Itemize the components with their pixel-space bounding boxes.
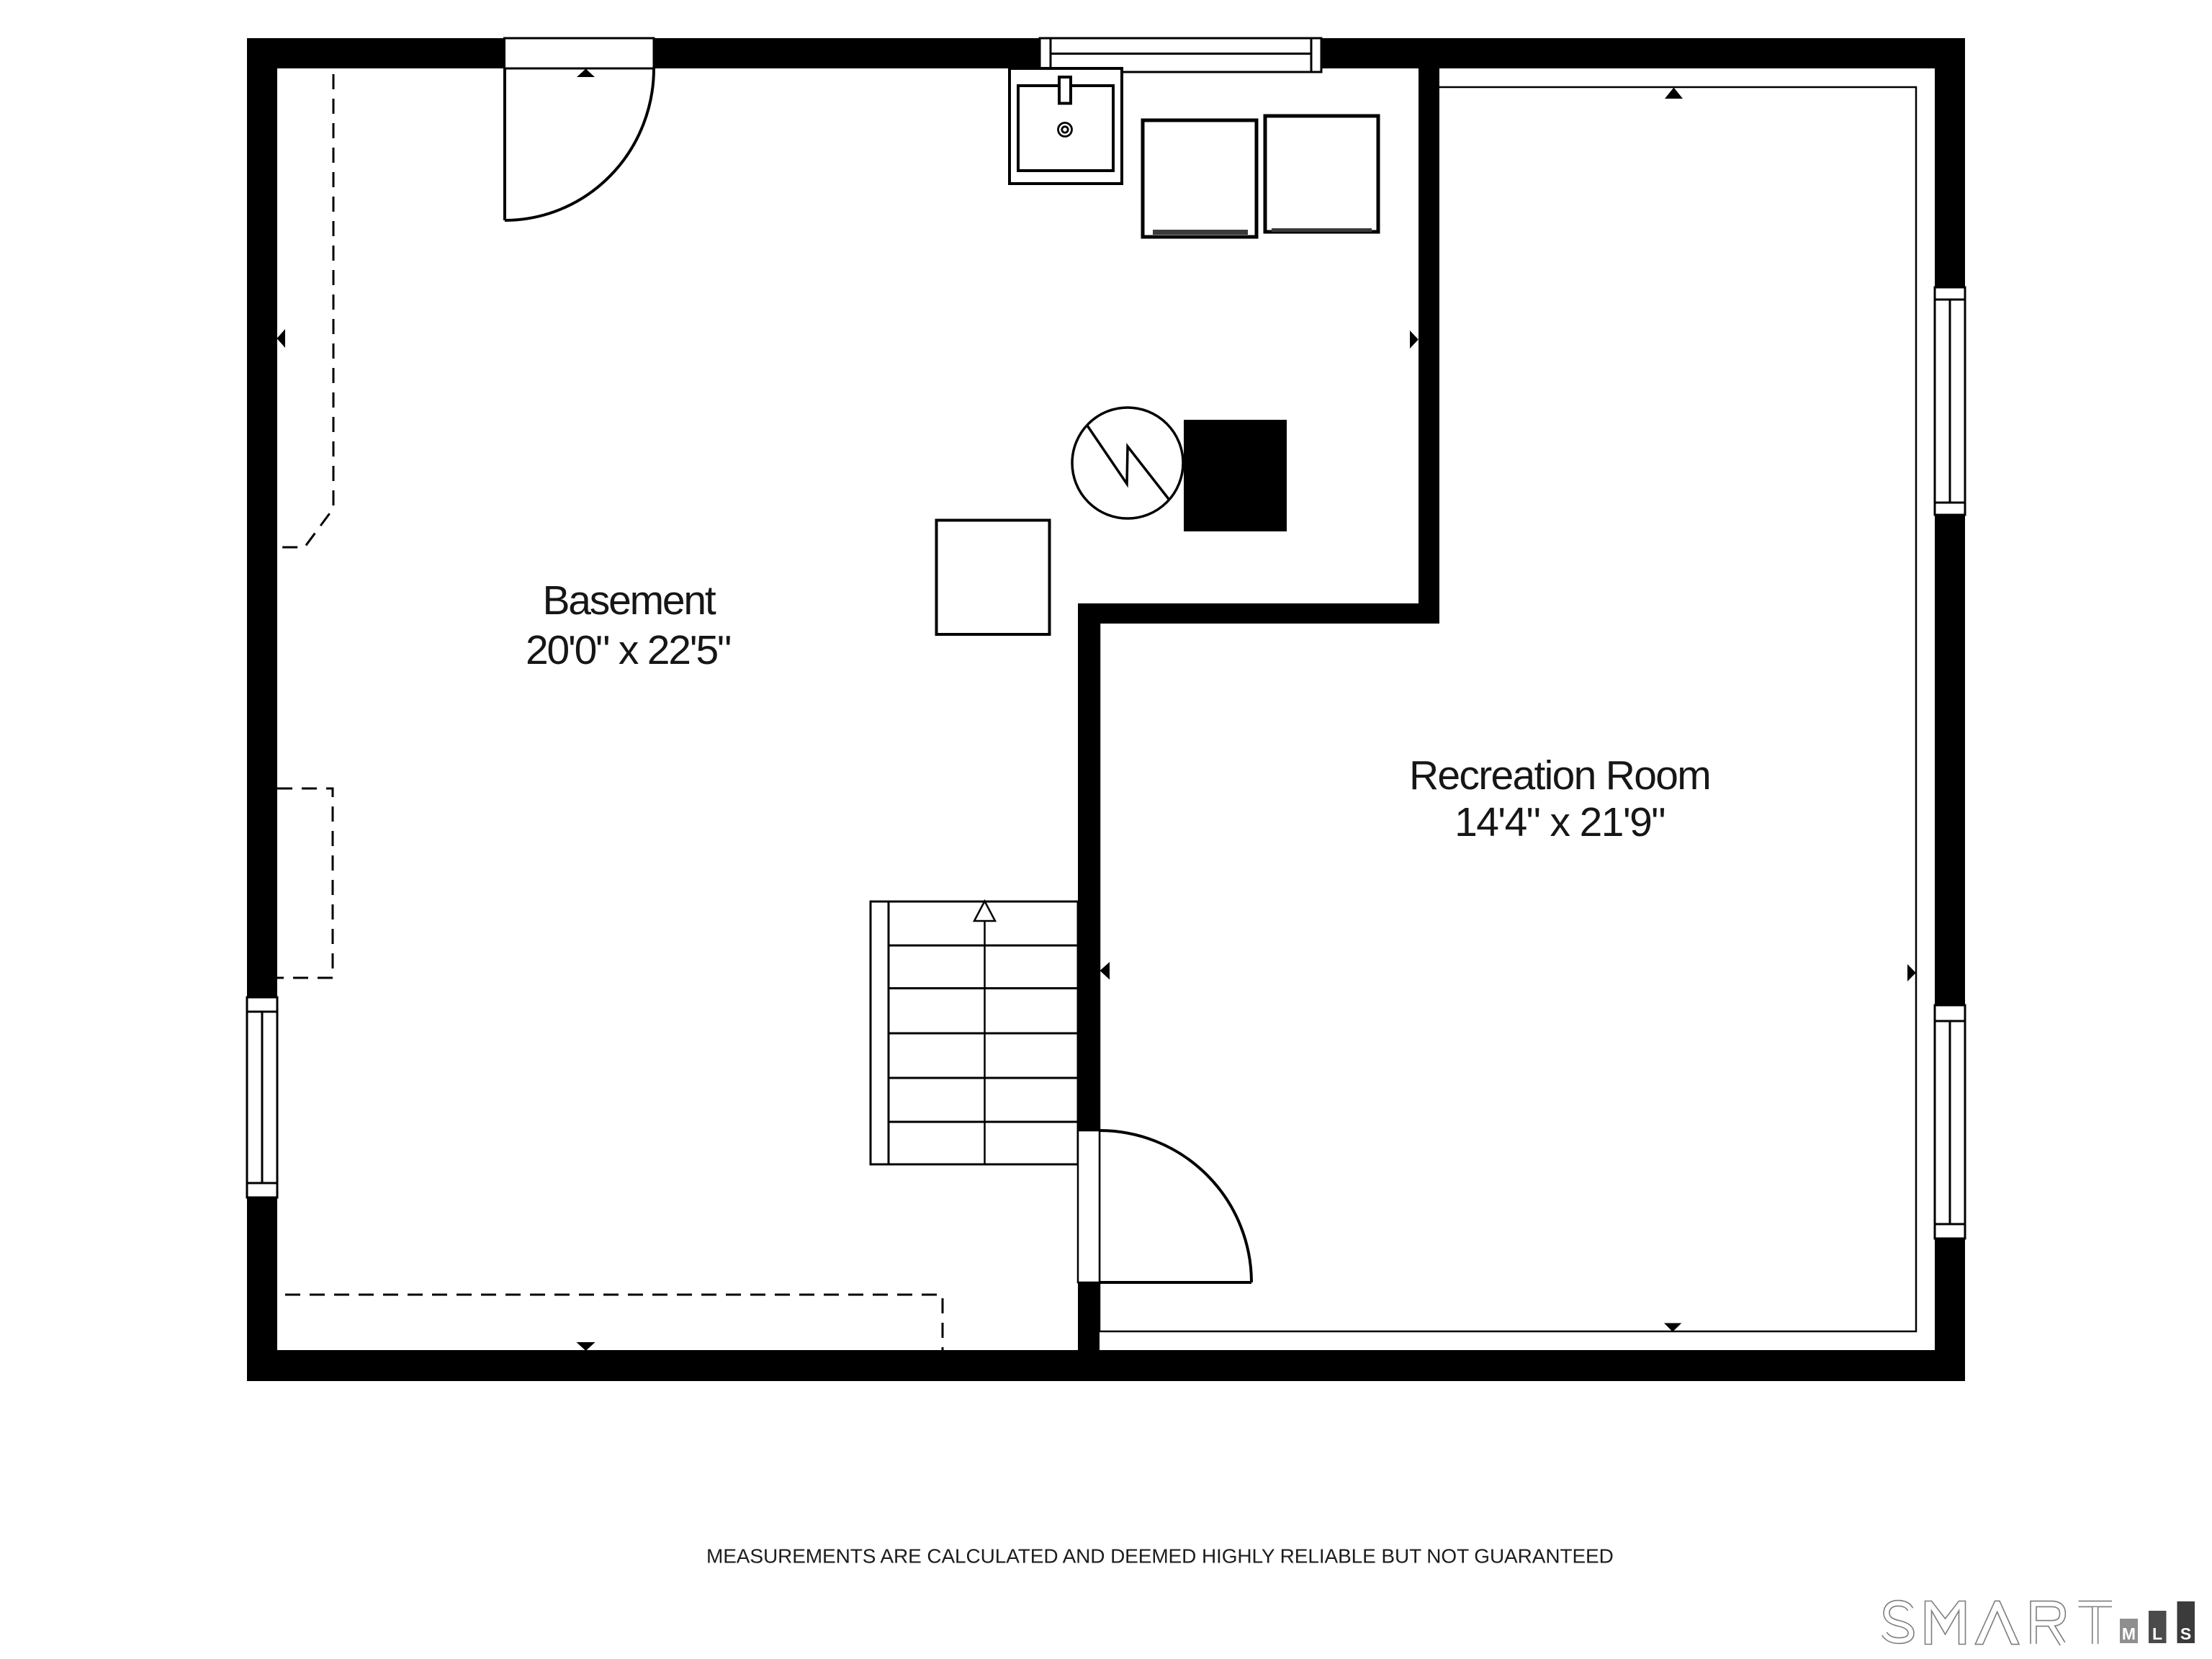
svg-text:Basement: Basement xyxy=(542,577,716,624)
svg-text:L: L xyxy=(2152,1624,2162,1643)
svg-text:14'4" x 21'9": 14'4" x 21'9" xyxy=(1455,799,1665,845)
svg-text:Recreation Room: Recreation Room xyxy=(1409,752,1710,799)
svg-text:S: S xyxy=(2180,1624,2191,1643)
svg-text:MEASUREMENTS ARE CALCULATED AN: MEASUREMENTS ARE CALCULATED AND DEEMED H… xyxy=(706,1545,1614,1568)
svg-text:M: M xyxy=(2122,1624,2136,1643)
svg-text:20'0" x 22'5": 20'0" x 22'5" xyxy=(526,627,730,673)
